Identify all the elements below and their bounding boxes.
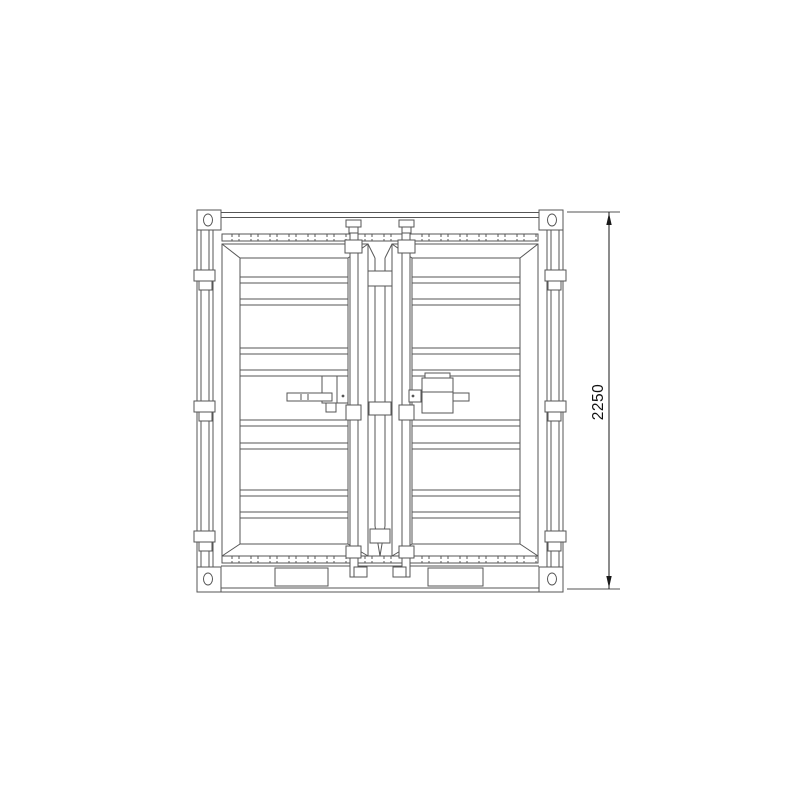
vent-plate-right <box>428 568 483 586</box>
handle-catch <box>326 403 336 412</box>
corner-casting-bottom-right <box>539 567 563 592</box>
arrowhead-down <box>606 576 611 588</box>
lock-rod-left-bar <box>350 222 358 577</box>
lock-rod-left-top-cam <box>346 220 361 227</box>
center-plate-top <box>368 271 392 286</box>
lock-box-bracket <box>409 390 421 402</box>
lock-rod-left-bottom-keeper <box>346 546 361 558</box>
lock-rod-right-bottom-keeper <box>399 546 414 558</box>
lock-rod-right-bottom-cam <box>393 567 406 577</box>
miter-line <box>222 244 240 258</box>
arrowhead-up <box>606 213 611 225</box>
handle-bar-right <box>453 393 469 401</box>
door-handle-left <box>287 376 348 412</box>
corner-casting-top-right <box>539 210 563 230</box>
dimension-label: 2250 <box>590 384 607 420</box>
center-door-gap <box>368 244 392 556</box>
lock-rod-right-guide <box>399 405 414 420</box>
lock-box-right <box>409 373 469 413</box>
lock-rod-left-top-keeper <box>345 240 362 253</box>
lock-rod-left-bottom-cam <box>354 567 367 577</box>
center-plate-middle <box>369 402 391 415</box>
lock-box-tab <box>425 373 450 378</box>
miter-line <box>222 544 240 556</box>
handle-rivet <box>342 395 345 398</box>
container-elevation <box>194 210 566 592</box>
handle-bar-left <box>287 393 332 401</box>
miter-line <box>520 544 538 556</box>
lock-box-body <box>422 378 453 413</box>
lock-rod-left-guide <box>346 405 361 420</box>
vent-plate-left <box>275 568 328 586</box>
door-sill-strip <box>222 556 538 563</box>
lock-box-rivet <box>412 395 415 398</box>
drawing-canvas: 2250 <box>0 0 800 800</box>
door-header-strip <box>222 234 538 241</box>
lock-rod-right-top-cam <box>399 220 414 227</box>
lock-rod-right-top-keeper <box>398 240 415 253</box>
technical-drawing: 2250 <box>0 0 800 800</box>
corner-casting-bottom-left <box>197 567 221 592</box>
corner-casting-top-left <box>197 210 221 230</box>
center-plate-bottom <box>370 529 390 543</box>
miter-line <box>520 244 538 258</box>
dimension-annotation: 2250 <box>567 212 620 589</box>
